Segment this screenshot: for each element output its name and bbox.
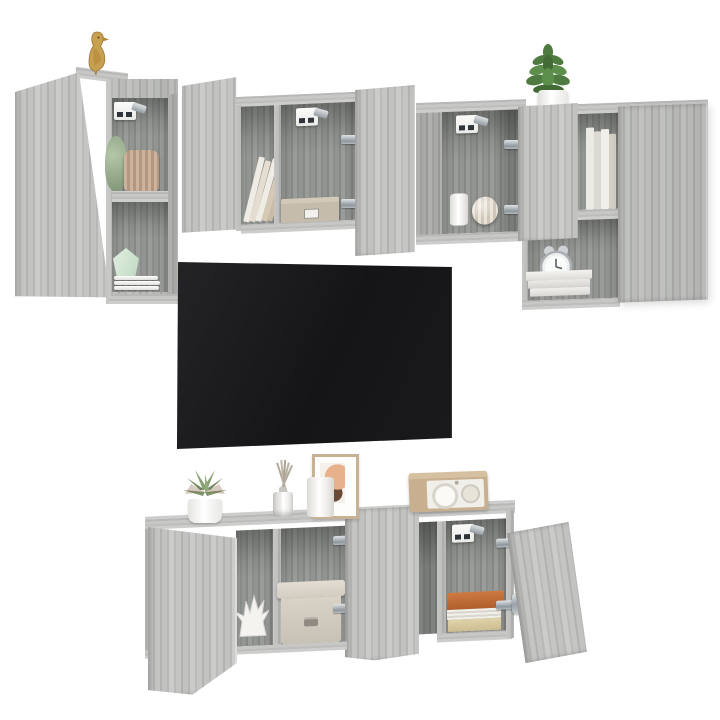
white-cup <box>450 193 468 226</box>
side-panel <box>416 112 442 243</box>
leaning-books <box>241 105 274 224</box>
divider <box>437 521 446 633</box>
divider <box>274 105 281 223</box>
open-door <box>14 70 111 302</box>
pillar-candle <box>307 477 334 517</box>
upper-middle-cabinet <box>160 60 430 270</box>
closed-tall-door <box>618 104 708 303</box>
open-door-left <box>148 517 237 697</box>
open-door-right <box>507 522 587 663</box>
white-book-stack <box>524 269 594 301</box>
open-door <box>517 101 579 241</box>
wall-bracket <box>114 102 136 120</box>
standing-books <box>586 119 620 210</box>
pleated-fan-ornament <box>124 150 159 191</box>
plate-stack <box>114 275 160 293</box>
vintage-radio <box>408 471 488 513</box>
gold-bird-figurine <box>82 30 114 76</box>
product-photo-scene <box>0 0 720 720</box>
open-door-middle <box>345 506 419 661</box>
wall-bracket <box>452 524 474 543</box>
open-door-left <box>179 74 238 236</box>
tv-screen <box>175 259 453 450</box>
coral-ornament <box>233 592 269 638</box>
cabinet-bottom-edge <box>108 294 178 304</box>
succulent-pot <box>188 499 222 523</box>
cabinet-carcass-left <box>416 99 526 245</box>
drawer-label <box>304 208 319 219</box>
wall-bracket <box>456 115 478 134</box>
cubby-shaded <box>419 522 437 635</box>
fabric-box-clasp <box>304 617 318 627</box>
reed-diffuser <box>262 458 302 518</box>
wall-bracket <box>296 107 318 126</box>
